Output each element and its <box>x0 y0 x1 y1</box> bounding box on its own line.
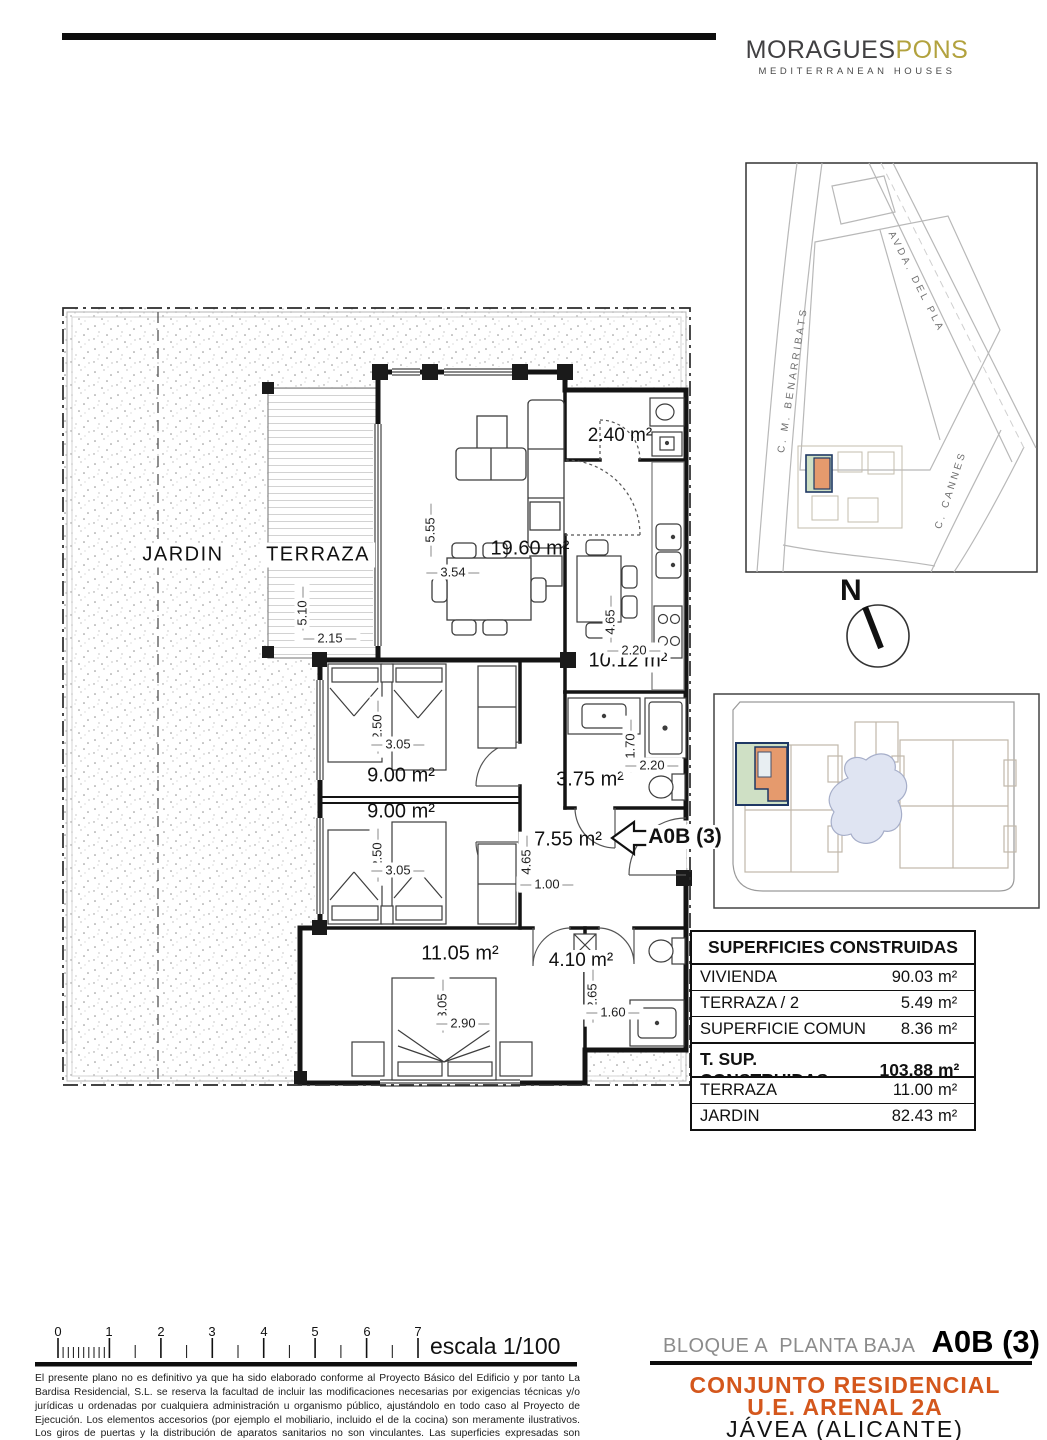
dim-bed1-w: 3.05 <box>367 737 428 752</box>
ruler-number: 3 <box>208 1324 215 1339</box>
block-floor-label: BLOQUE A PLANTA BAJA <box>663 1335 915 1358</box>
area-label-laundry-terrace: 2.40 m² <box>588 425 652 447</box>
ruler-number: 0 <box>54 1324 61 1339</box>
dim-kitchen-w: 2.20 <box>603 643 664 658</box>
ruler-number: 2 <box>157 1324 164 1339</box>
room-label-jardin: JARDIN <box>137 543 228 568</box>
row-unit: m² <box>933 1020 974 1039</box>
dim-master-w: 2.90 <box>432 1016 493 1031</box>
entrance-unit-tag: A0B (3) <box>646 825 724 849</box>
area-label-master-bedroom: 11.05 m² <box>421 943 498 966</box>
row-value: 90.03 <box>871 968 933 987</box>
logo-tagline: MEDITERRANEAN HOUSES <box>742 66 972 77</box>
dim-bath2-w: 1.60 <box>582 1005 643 1020</box>
logo-secondary: PONS <box>896 36 969 64</box>
table-row: VIVIENDA 90.03 m² <box>692 965 974 990</box>
table-row: TERRAZA 11.00 m² <box>692 1078 974 1103</box>
unit-code: A0B (3) <box>931 1324 1040 1360</box>
logo-primary: MORAGUES <box>746 36 896 64</box>
scale-ruler <box>58 1338 418 1358</box>
project-city: JÁVEA (ALICANTE) <box>650 1416 1040 1440</box>
row-unit: m² <box>933 994 974 1013</box>
area-label-bathroom-2: 4.10 m² <box>546 950 616 972</box>
dim-hall-w: 1.00 <box>516 877 577 892</box>
scale-label: escala 1/100 <box>430 1333 560 1360</box>
outdoor-surfaces-table: TERRAZA 11.00 m² JARDIN 82.43 m² <box>690 1076 976 1131</box>
company-logo: MORAGUESPONS MEDITERRANEAN HOUSES <box>742 36 972 77</box>
title-block: BLOQUE A PLANTA BAJA A0B (3) <box>650 1324 1040 1360</box>
floor-plan-drawing <box>0 0 1047 1440</box>
table-row: TERRAZA / 2 5.49 m² <box>692 990 974 1016</box>
row-label: JARDIN <box>692 1107 871 1126</box>
row-value: 11.00 <box>871 1081 933 1100</box>
ruler-number: 1 <box>105 1324 112 1339</box>
area-label-bedroom-2: 9.00 m² <box>367 801 435 824</box>
surfaces-table: SUPERFICIES CONSTRUIDAS VIVIENDA 90.03 m… <box>690 930 976 1098</box>
ruler-number: 5 <box>311 1324 318 1339</box>
dim-terraza-w: 2.15 <box>299 631 360 646</box>
ruler-number: 6 <box>363 1324 370 1339</box>
row-value: 82.43 <box>871 1107 933 1126</box>
area-label-hallway: 7.55 m² <box>534 829 602 852</box>
row-label: SUPERFICIE COMUN <box>692 1020 871 1039</box>
table-row: SUPERFICIE COMUN 8.36 m² <box>692 1016 974 1042</box>
row-unit: m² <box>933 1107 974 1126</box>
surfaces-table-title: SUPERFICIES CONSTRUIDAS <box>692 932 974 965</box>
ruler-number: 7 <box>414 1324 421 1339</box>
row-value: 8.36 <box>871 1020 933 1039</box>
ruler-number: 4 <box>260 1324 267 1339</box>
dim-bed2-w: 3.05 <box>367 863 428 878</box>
dim-living-w: 3.54 <box>422 565 483 580</box>
disclaimer-text: El presente plano no es definitivo ya qu… <box>35 1372 580 1440</box>
top-rule-bar <box>62 33 716 40</box>
dim-living-h: 5.55 <box>423 499 438 560</box>
plan-sheet: MORAGUESPONS MEDITERRANEAN HOUSES AVDA. … <box>0 0 1047 1440</box>
site-plan-drawing <box>714 694 1039 908</box>
dim-bath1-w: 2.20 <box>621 758 682 773</box>
row-unit: m² <box>933 1081 974 1100</box>
area-label-bedroom-1: 9.00 m² <box>367 765 435 788</box>
row-label: TERRAZA <box>692 1081 871 1100</box>
row-value: 5.49 <box>871 994 933 1013</box>
area-label-bathroom-1: 3.75 m² <box>556 769 624 792</box>
table-row: JARDIN 82.43 m² <box>692 1103 974 1129</box>
row-label: TERRAZA / 2 <box>692 994 871 1013</box>
row-label: VIVIENDA <box>692 968 871 987</box>
row-unit: m² <box>933 968 974 987</box>
north-label: N <box>840 574 862 608</box>
area-label-living: 19.60 m² <box>491 538 570 561</box>
compass-drawing <box>847 605 909 667</box>
room-label-terraza: TERRAZA <box>261 543 375 568</box>
